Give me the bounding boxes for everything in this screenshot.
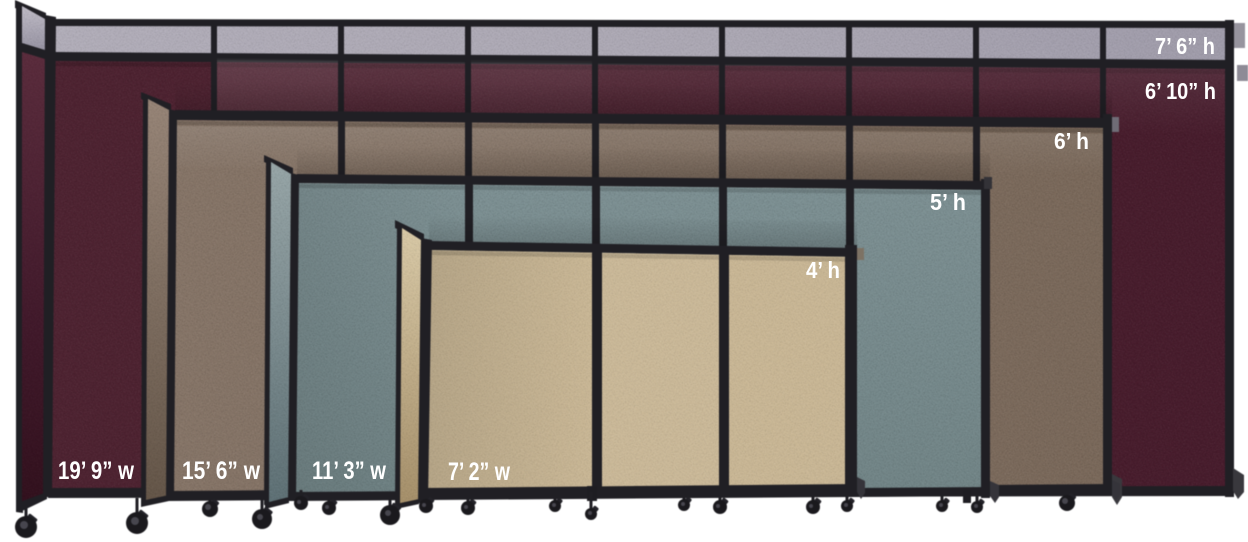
svg-text:15’ 6” w: 15’ 6” w bbox=[182, 457, 260, 485]
svg-text:7’ 2” w: 7’ 2” w bbox=[448, 458, 510, 486]
svg-text:6’ h: 6’ h bbox=[1054, 128, 1089, 154]
svg-text:7’ 6” h: 7’ 6” h bbox=[1155, 33, 1215, 59]
svg-text:4’ h: 4’ h bbox=[806, 257, 840, 283]
svg-text:5’ h: 5’ h bbox=[930, 189, 966, 215]
svg-text:6’ 10” h: 6’ 10” h bbox=[1145, 78, 1216, 104]
svg-text:11’ 3” w: 11’ 3” w bbox=[312, 457, 386, 485]
svg-text:19’ 9” w: 19’ 9” w bbox=[58, 457, 134, 485]
